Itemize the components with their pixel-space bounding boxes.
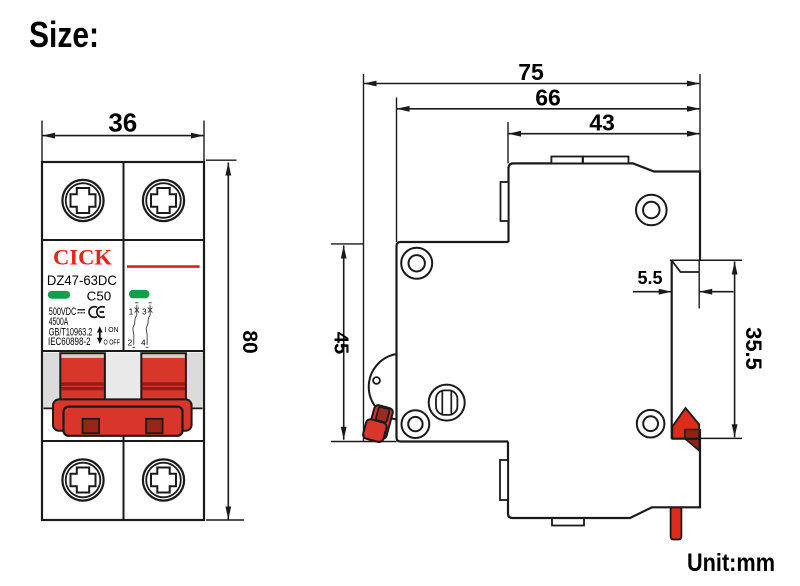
svg-text:CICK: CICK: [53, 245, 112, 270]
svg-text:35.5: 35.5: [741, 327, 766, 370]
svg-text:Unit:mm: Unit:mm: [687, 549, 775, 577]
svg-text:4: 4: [141, 338, 146, 347]
svg-text:1: 1: [129, 308, 134, 317]
svg-text:45: 45: [330, 332, 352, 354]
svg-text:O OFF: O OFF: [104, 339, 121, 346]
svg-text:Size:: Size:: [29, 14, 99, 55]
svg-text:80: 80: [238, 330, 261, 353]
svg-text:2: 2: [128, 338, 133, 347]
svg-text:3: 3: [142, 308, 147, 317]
svg-text:I ON: I ON: [105, 327, 119, 334]
svg-text:75: 75: [518, 59, 544, 85]
svg-text:43: 43: [589, 109, 615, 135]
svg-text:36: 36: [108, 108, 137, 138]
svg-text:5.5: 5.5: [637, 268, 662, 288]
svg-text:DZ47-63DC: DZ47-63DC: [47, 272, 117, 288]
svg-text:IEC60898-2: IEC60898-2: [48, 336, 91, 348]
svg-text:66: 66: [535, 85, 561, 111]
svg-text:C50: C50: [87, 288, 112, 303]
